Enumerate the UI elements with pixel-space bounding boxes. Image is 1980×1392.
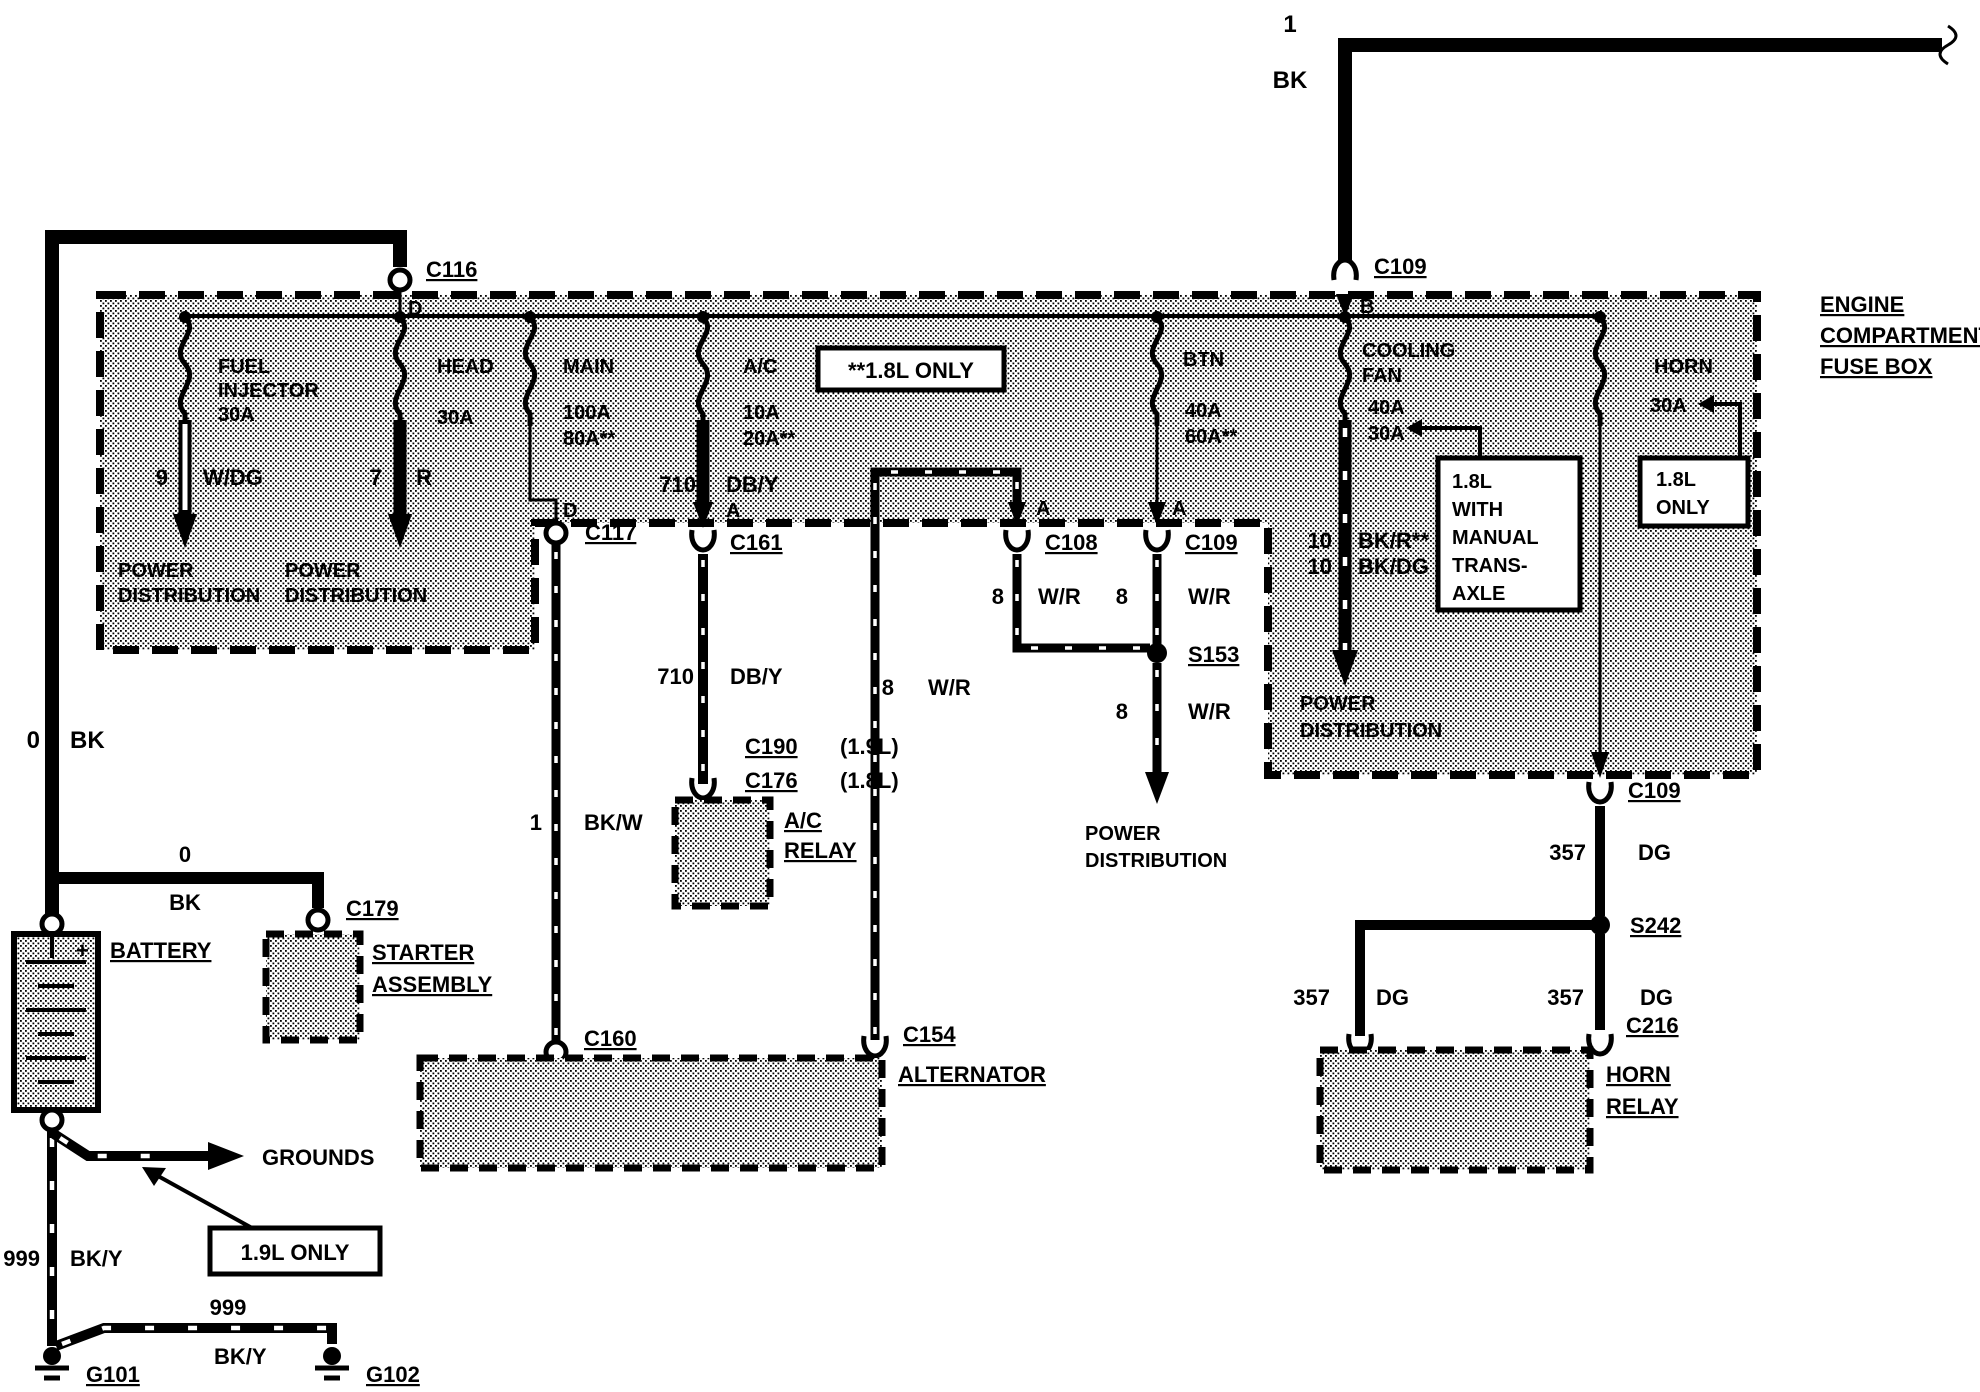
ground-g101-label: G101 — [86, 1362, 140, 1387]
destination-power-distribution2: DISTRIBUTION — [1085, 850, 1227, 872]
wire-8-wr-left-ticks — [1017, 560, 1150, 648]
wire-circuit-number: 8 — [1116, 584, 1128, 609]
wire-color-code3: DG — [1640, 985, 1673, 1010]
connector-c117-symbol — [546, 523, 566, 543]
ac-relay-box — [675, 800, 770, 906]
btn-fuse-rating-alt: 60A** — [1185, 426, 1237, 448]
alternator-label: ALTERNATOR — [898, 1062, 1046, 1087]
fuel-injector-fuse-name: FUEL — [218, 356, 270, 378]
ac-relay-label: A/C — [784, 808, 822, 833]
wire-circuit-number: 357 — [1549, 840, 1586, 865]
destination-power-distribution: POWER — [285, 560, 361, 582]
ac-fuse-rating: 10A — [743, 402, 780, 424]
destination-power-distribution2: DISTRIBUTION — [1300, 720, 1442, 742]
wire-circuit-number: 7 — [370, 465, 382, 490]
fuel-injector-fuse-rating: 30A — [218, 404, 255, 426]
cooling-fan-fuse-rating: 40A — [1368, 397, 1405, 419]
connector-c161-label: C161 — [730, 530, 783, 555]
connector-c216-label: C216 — [1626, 1013, 1679, 1038]
connector-c179-label: C179 — [346, 896, 399, 921]
connector-c179-symbol — [308, 910, 328, 930]
wire-break-symbol — [1940, 26, 1956, 64]
destination-power-distribution2: DISTRIBUTION — [285, 585, 427, 607]
splice-s153-label: S153 — [1188, 642, 1239, 667]
ground-g102-label: G102 — [366, 1362, 420, 1387]
wire-circuit-number: 710 — [659, 472, 696, 497]
grounds-branch-wire — [54, 1134, 208, 1156]
destination-power-distribution: POWER — [1300, 693, 1376, 715]
wire-circuit-number: 1 — [530, 810, 542, 835]
destination-power-distribution: POWER — [1085, 823, 1161, 845]
wire-circuit-number: 999 — [3, 1246, 40, 1271]
note-manual-line: AXLE — [1452, 583, 1505, 605]
wire-color-code: DB/Y — [726, 472, 779, 497]
terminal-d-label: D — [408, 298, 422, 320]
horn-relay-label: HORN — [1606, 1062, 1671, 1087]
destination-power-distribution2: DISTRIBUTION — [118, 585, 260, 607]
cooling-fan-fuse-name2: FAN — [1362, 365, 1402, 387]
battery-plus-sign: + — [76, 938, 89, 963]
wire-circuit-number2: 8 — [1116, 699, 1128, 724]
title-line: COMPARTMENT — [1820, 323, 1980, 348]
terminal-a-label: A — [1172, 498, 1186, 520]
note-19l-leader — [158, 1176, 252, 1228]
wire-circuit-number: 10 — [1308, 528, 1332, 553]
wire-color-code: BK/W — [584, 810, 643, 835]
main-fuse-rating-alt: 80A** — [563, 428, 615, 450]
wire-color-code: R — [416, 465, 432, 490]
connector-c117-label: C117 — [585, 520, 636, 545]
connector-c190-label: C190 — [745, 734, 798, 759]
note-18l-line: ONLY — [1656, 497, 1710, 519]
main-fuse-name: MAIN — [563, 356, 614, 378]
wire-circuit-number3: 357 — [1547, 985, 1584, 1010]
note-manual-line: WITH — [1452, 499, 1503, 521]
note-19l-only-text: 1.9L ONLY — [241, 1240, 350, 1265]
arrow-down — [1145, 772, 1169, 804]
wire-circuit-number2: 10 — [1308, 554, 1332, 579]
terminal-a-label: A — [726, 500, 740, 522]
terminal-a-label: A — [1036, 498, 1050, 520]
wire-circuit-number: 0 — [27, 727, 40, 754]
wire-circuit-number: 9 — [156, 465, 168, 490]
connector-c109-bot-symbol — [1589, 782, 1612, 802]
wire-color-code2: BK/DG — [1358, 554, 1429, 579]
wire-circuit-number: 8 — [992, 584, 1004, 609]
wire-color-code: W/R — [1038, 584, 1081, 609]
wire-circuit-number2: 999 — [210, 1295, 247, 1320]
ground-g102-symbol — [315, 1347, 349, 1378]
wire-999-bky-branch — [56, 1328, 332, 1346]
connector-c161-symbol — [692, 530, 715, 550]
wire-8-wr-left — [1017, 554, 1150, 648]
wire-color-code: DG — [1638, 840, 1671, 865]
btn-fuse-rating: 40A — [1185, 400, 1222, 422]
wire-color-code: BK — [70, 727, 105, 754]
wire-color-code: BK — [169, 890, 201, 915]
splice-s242-label: S242 — [1630, 913, 1681, 938]
fuel-injector-fuse-name2: INJECTOR — [218, 380, 319, 402]
connector-c109-mid-symbol — [1146, 530, 1169, 550]
wire-circuit-number2: 357 — [1293, 985, 1330, 1010]
horn-fuse-name: HORN — [1654, 356, 1713, 378]
main-fuse-rating: 100A — [563, 402, 611, 424]
note-manual-line: MANUAL — [1452, 527, 1539, 549]
connector-c160-label: C160 — [584, 1026, 637, 1051]
cooling-fan-fuse-name: COOLING — [1362, 340, 1455, 362]
btn-fuse-name: BTN — [1183, 349, 1224, 371]
horn-relay-label2: RELAY — [1606, 1094, 1679, 1119]
ac-fuse-rating-alt: 20A** — [743, 428, 795, 450]
wire-color-code2: W/R — [1188, 699, 1231, 724]
feed-wire-1-bk — [1345, 45, 1942, 262]
wire-circuit-number: 1 — [1283, 11, 1296, 38]
note-manual-line: TRANS- — [1452, 555, 1528, 577]
wiring-diagram: 1 BK C109 B C116 D 0 BK ENGINE COMPARTME… — [0, 0, 1980, 1392]
battery-label: BATTERY — [110, 938, 212, 963]
grounds-label: GROUNDS — [262, 1145, 374, 1170]
title-line: ENGINE — [1820, 292, 1904, 317]
wire-circuit-number2: 8 — [882, 675, 894, 700]
connector-c109-top-symbol — [1334, 260, 1357, 280]
note-18l-line: 1.8L — [1656, 469, 1696, 491]
terminal-d2-label: D — [563, 500, 577, 522]
battery-negative-terminal — [42, 1110, 62, 1130]
wire-color-code: W/DG — [203, 465, 263, 490]
wiring-diagram-page: 1 BK C109 B C116 D 0 BK ENGINE COMPARTME… — [0, 0, 1980, 1392]
connector-c190-note: (1.9L) — [840, 734, 899, 759]
wire-color-code2: W/R — [928, 675, 971, 700]
destination-power-distribution: POWER — [118, 560, 194, 582]
head-fuse-name: HEAD — [437, 356, 494, 378]
connector-c108-label: C108 — [1045, 530, 1098, 555]
main-feed-circuit: 1 BK C109 B — [1273, 11, 1956, 318]
ac-fuse-name: A/C — [743, 356, 777, 378]
terminal-b-label: B — [1360, 296, 1374, 318]
cooling-fan-fuse-rating-alt: 30A — [1368, 423, 1405, 445]
wire-color-code2: DG — [1376, 985, 1409, 1010]
connector-c116-label: C116 — [426, 257, 477, 282]
wire-circuit-number2: 710 — [657, 664, 694, 689]
connector-c109-top-label: C109 — [1374, 254, 1427, 279]
ac-relay-label2: RELAY — [784, 838, 857, 863]
grounds-arrow — [208, 1142, 244, 1170]
wire-color-code2: DB/Y — [730, 664, 783, 689]
head-fuse-rating: 30A — [437, 407, 474, 429]
starter-assembly-label: STARTER — [372, 940, 474, 965]
wire-color-code: W/R — [1188, 584, 1231, 609]
title-line: FUSE BOX — [1820, 354, 1933, 379]
wire-circuit-number: 0 — [179, 842, 191, 867]
wire-color-code: BK/Y — [70, 1246, 123, 1271]
fuse-box-title: ENGINE COMPARTMENT FUSE BOX — [1820, 292, 1980, 379]
starter-assembly-box — [266, 934, 360, 1040]
wire-color-code2: BK/Y — [214, 1344, 267, 1369]
connector-c116-symbol — [390, 270, 410, 290]
note-manual-line: 1.8L — [1452, 471, 1492, 493]
horn-relay-box — [1320, 1050, 1590, 1170]
starter-assembly-label2: ASSEMBLY — [372, 972, 493, 997]
ground-g101-symbol — [35, 1347, 69, 1378]
connector-c176-note: (1.8L) — [840, 768, 899, 793]
note-18l-only-text: **1.8L ONLY — [848, 358, 974, 383]
connector-c109-bot-label: C109 — [1628, 778, 1681, 803]
connector-c108-symbol — [1006, 530, 1029, 550]
ground-circuits: 999 BK/Y GROUNDS 1.9L ONLY 999 BK/Y G101… — [3, 1130, 420, 1387]
connector-c109-mid-label: C109 — [1185, 530, 1238, 555]
connector-c176-label: C176 — [745, 768, 798, 793]
wire-color-code: BK — [1273, 67, 1308, 94]
horn-fuse-rating: 30A — [1650, 395, 1687, 417]
wire-357-dg-branch — [1360, 925, 1596, 1036]
connector-c154-label: C154 — [903, 1022, 956, 1047]
wire-color-code: BK/R** — [1358, 528, 1429, 553]
alternator-box — [420, 1058, 882, 1168]
